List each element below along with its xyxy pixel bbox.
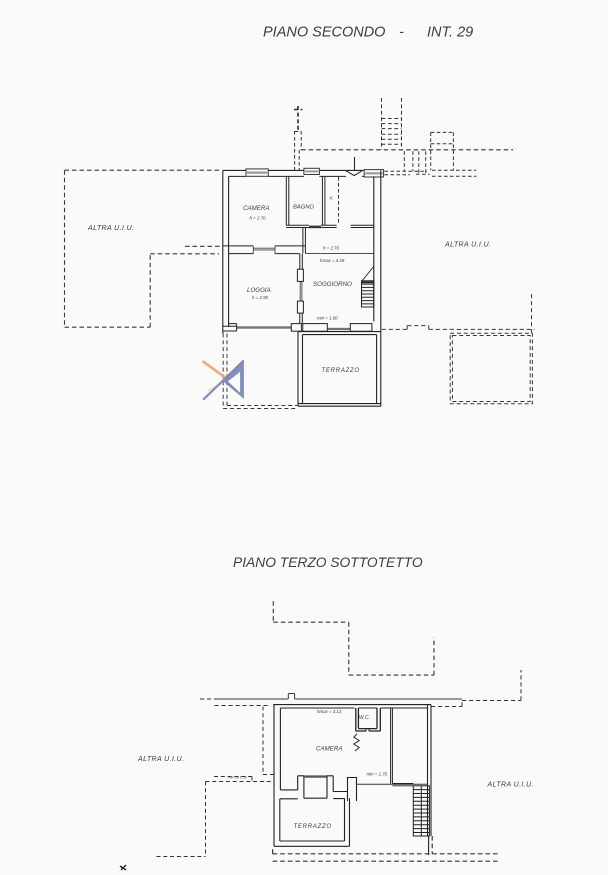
svg-text:TERRAZZO: TERRAZZO [322,368,360,374]
svg-text:BAGNO: BAGNO [293,205,314,211]
svg-text:CAMERA: CAMERA [316,746,342,753]
svg-text:-: - [399,25,404,41]
svg-text:INT. 29: INT. 29 [427,25,473,41]
svg-text:h = 2.70: h = 2.70 [250,216,267,221]
svg-text:h = 2.90: h = 2.90 [252,295,269,300]
svg-text:min mt 1.50: min mt 1.50 [228,776,247,780]
svg-text:min = 1.70: min = 1.70 [367,772,388,777]
svg-text:CAMERA: CAMERA [243,205,269,212]
svg-text:hmax = 3.13: hmax = 3.13 [317,709,342,714]
svg-text:SOGGIORNO: SOGGIORNO [313,281,352,288]
svg-text:ALTRA U.I.U.: ALTRA U.I.U. [137,756,184,763]
svg-text:K.: K. [330,196,334,201]
svg-text:ALTRA U.I.U.: ALTRA U.I.U. [87,225,134,232]
svg-text:ALTRA U.I.U.: ALTRA U.I.U. [487,782,534,789]
svg-text:TERRAZZO: TERRAZZO [294,824,332,830]
svg-text:min = 1.60: min = 1.60 [317,315,338,320]
svg-text:hmax = 4.28: hmax = 4.28 [320,258,345,263]
svg-text:W.C.: W.C. [359,715,370,721]
svg-text:PIANO TERZO SOTTOTETTO: PIANO TERZO SOTTOTETTO [233,555,423,570]
svg-text:h = 2.70: h = 2.70 [323,245,340,250]
svg-text:PIANO SECONDO: PIANO SECONDO [263,25,385,41]
svg-text:LOGGIA: LOGGIA [247,287,271,294]
svg-text:ALTRA U.I.U.: ALTRA U.I.U. [444,242,491,249]
